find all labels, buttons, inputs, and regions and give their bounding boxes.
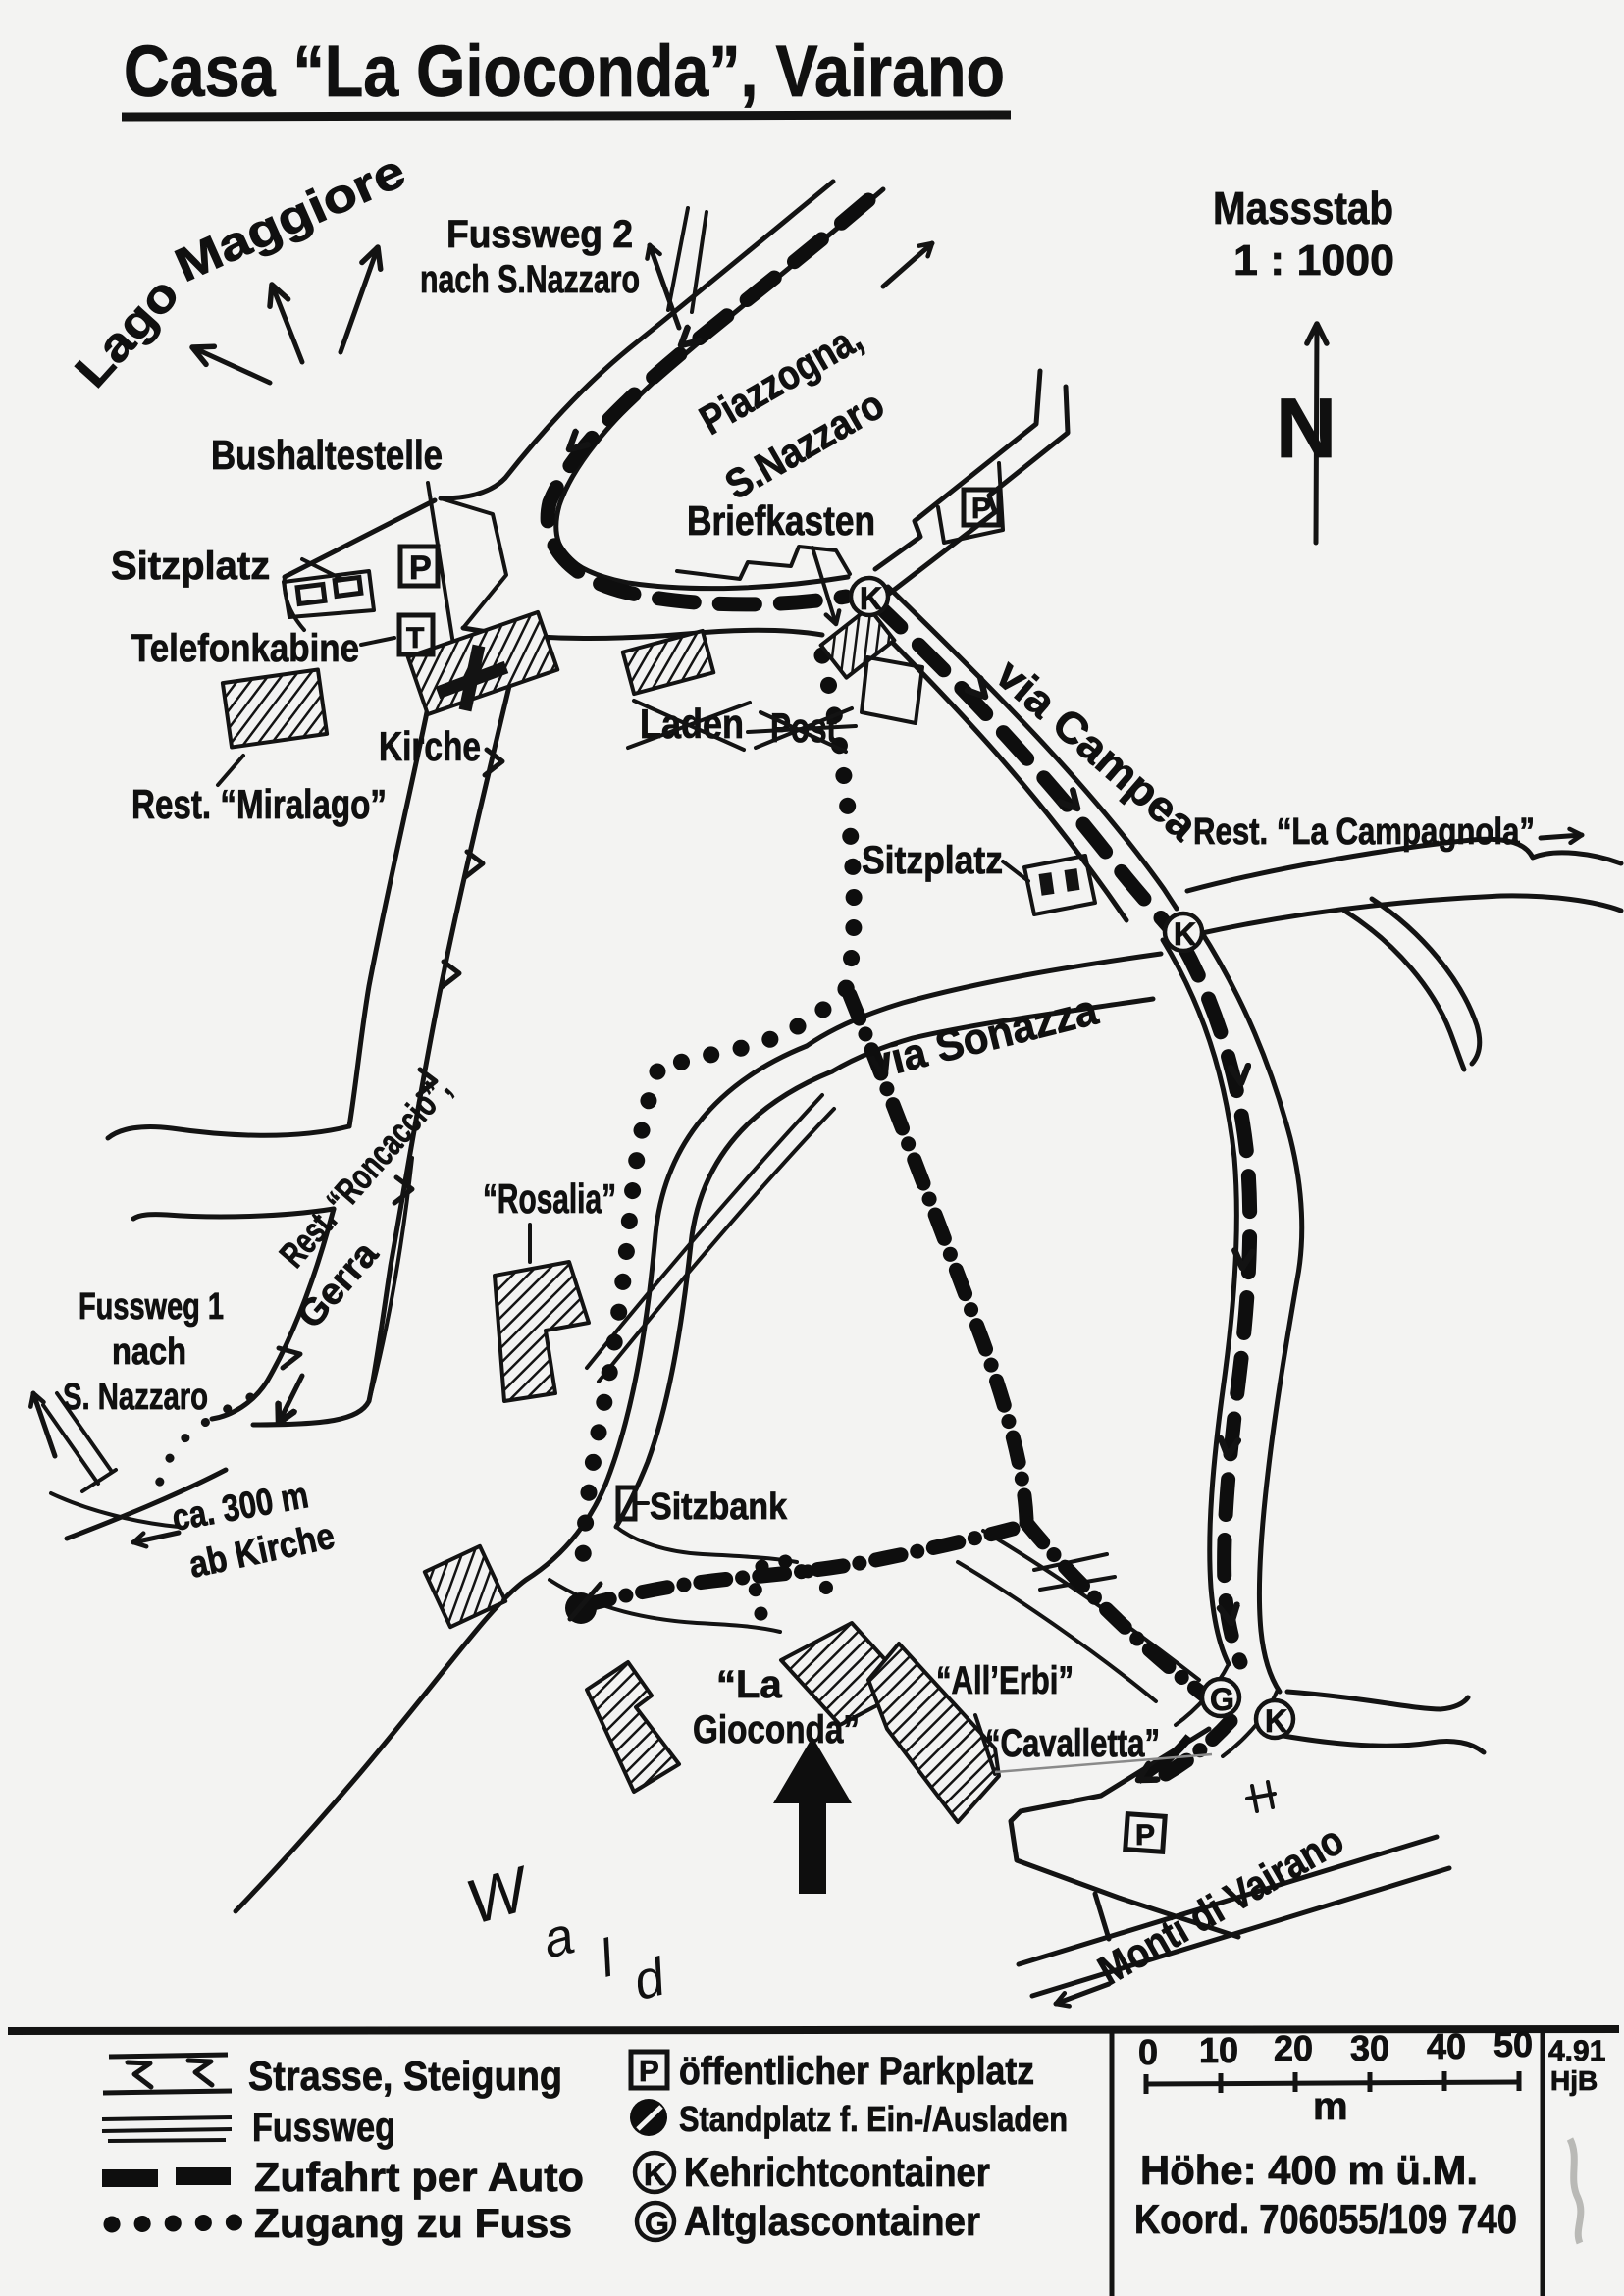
svg-text:“La: “La <box>716 1663 782 1706</box>
svg-text:40: 40 <box>1427 2026 1466 2066</box>
svg-text:Koord. 706055/109 740: Koord. 706055/109 740 <box>1134 2196 1517 2242</box>
svg-text:Zufahrt per Auto: Zufahrt per Auto <box>254 2154 584 2200</box>
svg-text:P: P <box>409 549 432 587</box>
svg-text:Gioconda”: Gioconda” <box>693 1708 860 1751</box>
svg-text:10: 10 <box>1199 2030 1238 2070</box>
svg-text:G: G <box>1210 1682 1234 1717</box>
svg-text:Zugang zu Fuss: Zugang zu Fuss <box>254 2200 572 2246</box>
svg-text:Casa “La Gioconda”, Vairano: Casa “La Gioconda”, Vairano <box>124 30 1005 112</box>
svg-text:HjB: HjB <box>1550 2065 1598 2096</box>
svg-text:öffentlicher Parkplatz: öffentlicher Parkplatz <box>679 2050 1034 2093</box>
svg-text:m: m <box>1313 2085 1348 2128</box>
svg-text:30: 30 <box>1350 2028 1389 2068</box>
svg-text:Fussweg: Fussweg <box>252 2104 395 2150</box>
svg-text:K: K <box>860 581 882 616</box>
svg-text:Sitzplatz: Sitzplatz <box>111 545 270 588</box>
svg-text:50: 50 <box>1493 2024 1533 2064</box>
svg-text:“All’Erbi”: “All’Erbi” <box>936 1659 1074 1702</box>
svg-text:Fussweg 2: Fussweg 2 <box>446 213 633 256</box>
svg-text:nach: nach <box>112 1331 186 1373</box>
svg-text:1 : 1000: 1 : 1000 <box>1233 236 1394 285</box>
svg-text:Höhe: 400 m ü.M.: Höhe: 400 m ü.M. <box>1140 2147 1478 2193</box>
svg-text:N: N <box>1276 382 1336 476</box>
svg-text:Massstab: Massstab <box>1213 183 1393 234</box>
svg-text:P: P <box>639 2054 659 2088</box>
svg-text:G: G <box>645 2206 669 2241</box>
svg-text:T: T <box>406 622 424 654</box>
svg-text:Kirche: Kirche <box>379 723 481 769</box>
svg-text:Sitzplatz: Sitzplatz <box>862 839 1003 882</box>
svg-text:Sitzbank: Sitzbank <box>650 1487 788 1528</box>
svg-text:Strasse, Steigung: Strasse, Steigung <box>248 2053 562 2099</box>
svg-text:Rest. “La Campagnola”: Rest. “La Campagnola” <box>1193 811 1535 853</box>
svg-text:nach S.Nazzaro: nach S.Nazzaro <box>420 258 640 301</box>
svg-text:Bushaltestelle: Bushaltestelle <box>211 432 443 478</box>
svg-text:Altglascontainer: Altglascontainer <box>684 2198 980 2244</box>
svg-text:K: K <box>1174 916 1196 952</box>
svg-text:“Rosalia”: “Rosalia” <box>483 1175 616 1222</box>
svg-text:Rest. “Miralago”: Rest. “Miralago” <box>131 781 387 827</box>
svg-text:“Cavalletta”: “Cavalletta” <box>985 1722 1160 1765</box>
svg-text:Briefkasten: Briefkasten <box>687 497 875 544</box>
svg-text:K: K <box>1265 1703 1287 1739</box>
svg-text:P: P <box>1135 1819 1155 1852</box>
svg-text:P: P <box>971 493 991 525</box>
svg-text:0: 0 <box>1138 2032 1158 2072</box>
svg-text:Telefonkabine: Telefonkabine <box>131 627 359 670</box>
svg-text:Fussweg 1: Fussweg 1 <box>79 1286 224 1328</box>
svg-text:Standplatz f. Ein-/Ausladen: Standplatz f. Ein-/Ausladen <box>679 2099 1068 2139</box>
svg-text:20: 20 <box>1274 2028 1313 2068</box>
svg-text:4.91: 4.91 <box>1548 2035 1605 2067</box>
svg-text:K: K <box>644 2157 666 2192</box>
svg-text:Kehrichtcontainer: Kehrichtcontainer <box>684 2149 990 2195</box>
svg-text:S. Nazzaro: S. Nazzaro <box>63 1377 208 1418</box>
